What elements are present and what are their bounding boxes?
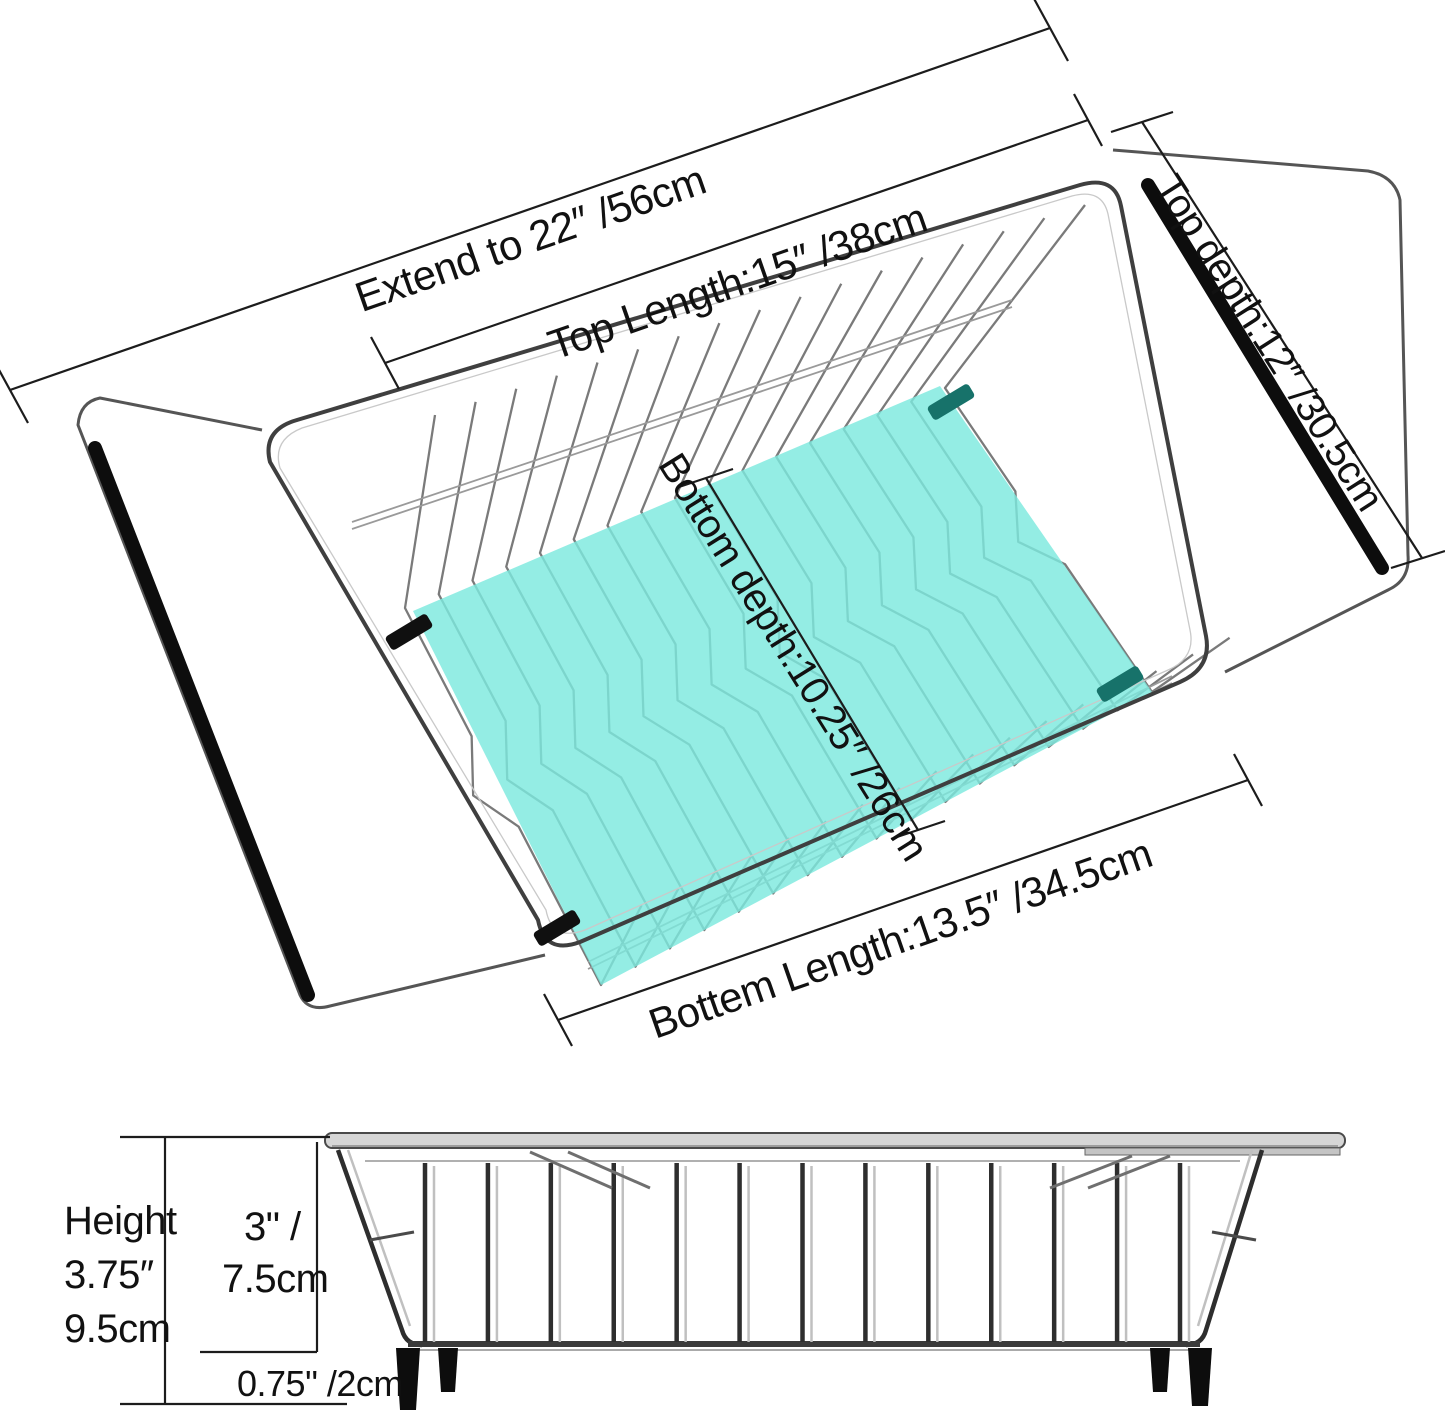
rubber-feet (396, 1348, 1212, 1410)
dimension-feet-height: 0.75" /2cm (237, 1363, 403, 1404)
right-extend-arm (1113, 150, 1408, 672)
label-height-cm: 9.5cm (64, 1307, 170, 1351)
hook-wires (530, 1152, 1170, 1188)
side-end-walls (338, 1150, 1262, 1345)
dish-rack-diagram-svg: Extend to 22″ /56cm Top Length:15″ /38cm… (0, 0, 1445, 1412)
label-feet-height: 0.75" /2cm (237, 1363, 403, 1404)
side-view-illustration: Height 3.75″ 9.5cm 3" / 7.5cm 0.75" /2cm (64, 1133, 1345, 1410)
rubber-foot (438, 1348, 458, 1392)
label-height-inches: 3.75″ (64, 1253, 154, 1297)
rubber-foot (1150, 1348, 1170, 1392)
product-dimension-diagram: Extend to 22″ /56cm Top Length:15″ /38cm… (0, 0, 1445, 1412)
label-top-depth: Top depth:12″ /30.5cm (1146, 167, 1392, 518)
dimension-inner-height: 3" / 7.5cm (200, 1142, 328, 1352)
side-arm-sleeve (1085, 1148, 1340, 1155)
left-rubber-grip (95, 448, 308, 995)
top-view-illustration: Extend to 22″ /56cm Top Length:15″ /38cm… (0, 0, 1445, 1047)
label-inner-height-inches: 3" / (244, 1205, 302, 1249)
label-height-word: Height (64, 1199, 177, 1243)
side-vertical-bars (425, 1163, 1189, 1342)
rubber-foot (1188, 1348, 1212, 1406)
label-inner-height-cm: 7.5cm (222, 1257, 328, 1301)
dimension-top-depth: Top depth:12″ /30.5cm (1111, 112, 1445, 568)
